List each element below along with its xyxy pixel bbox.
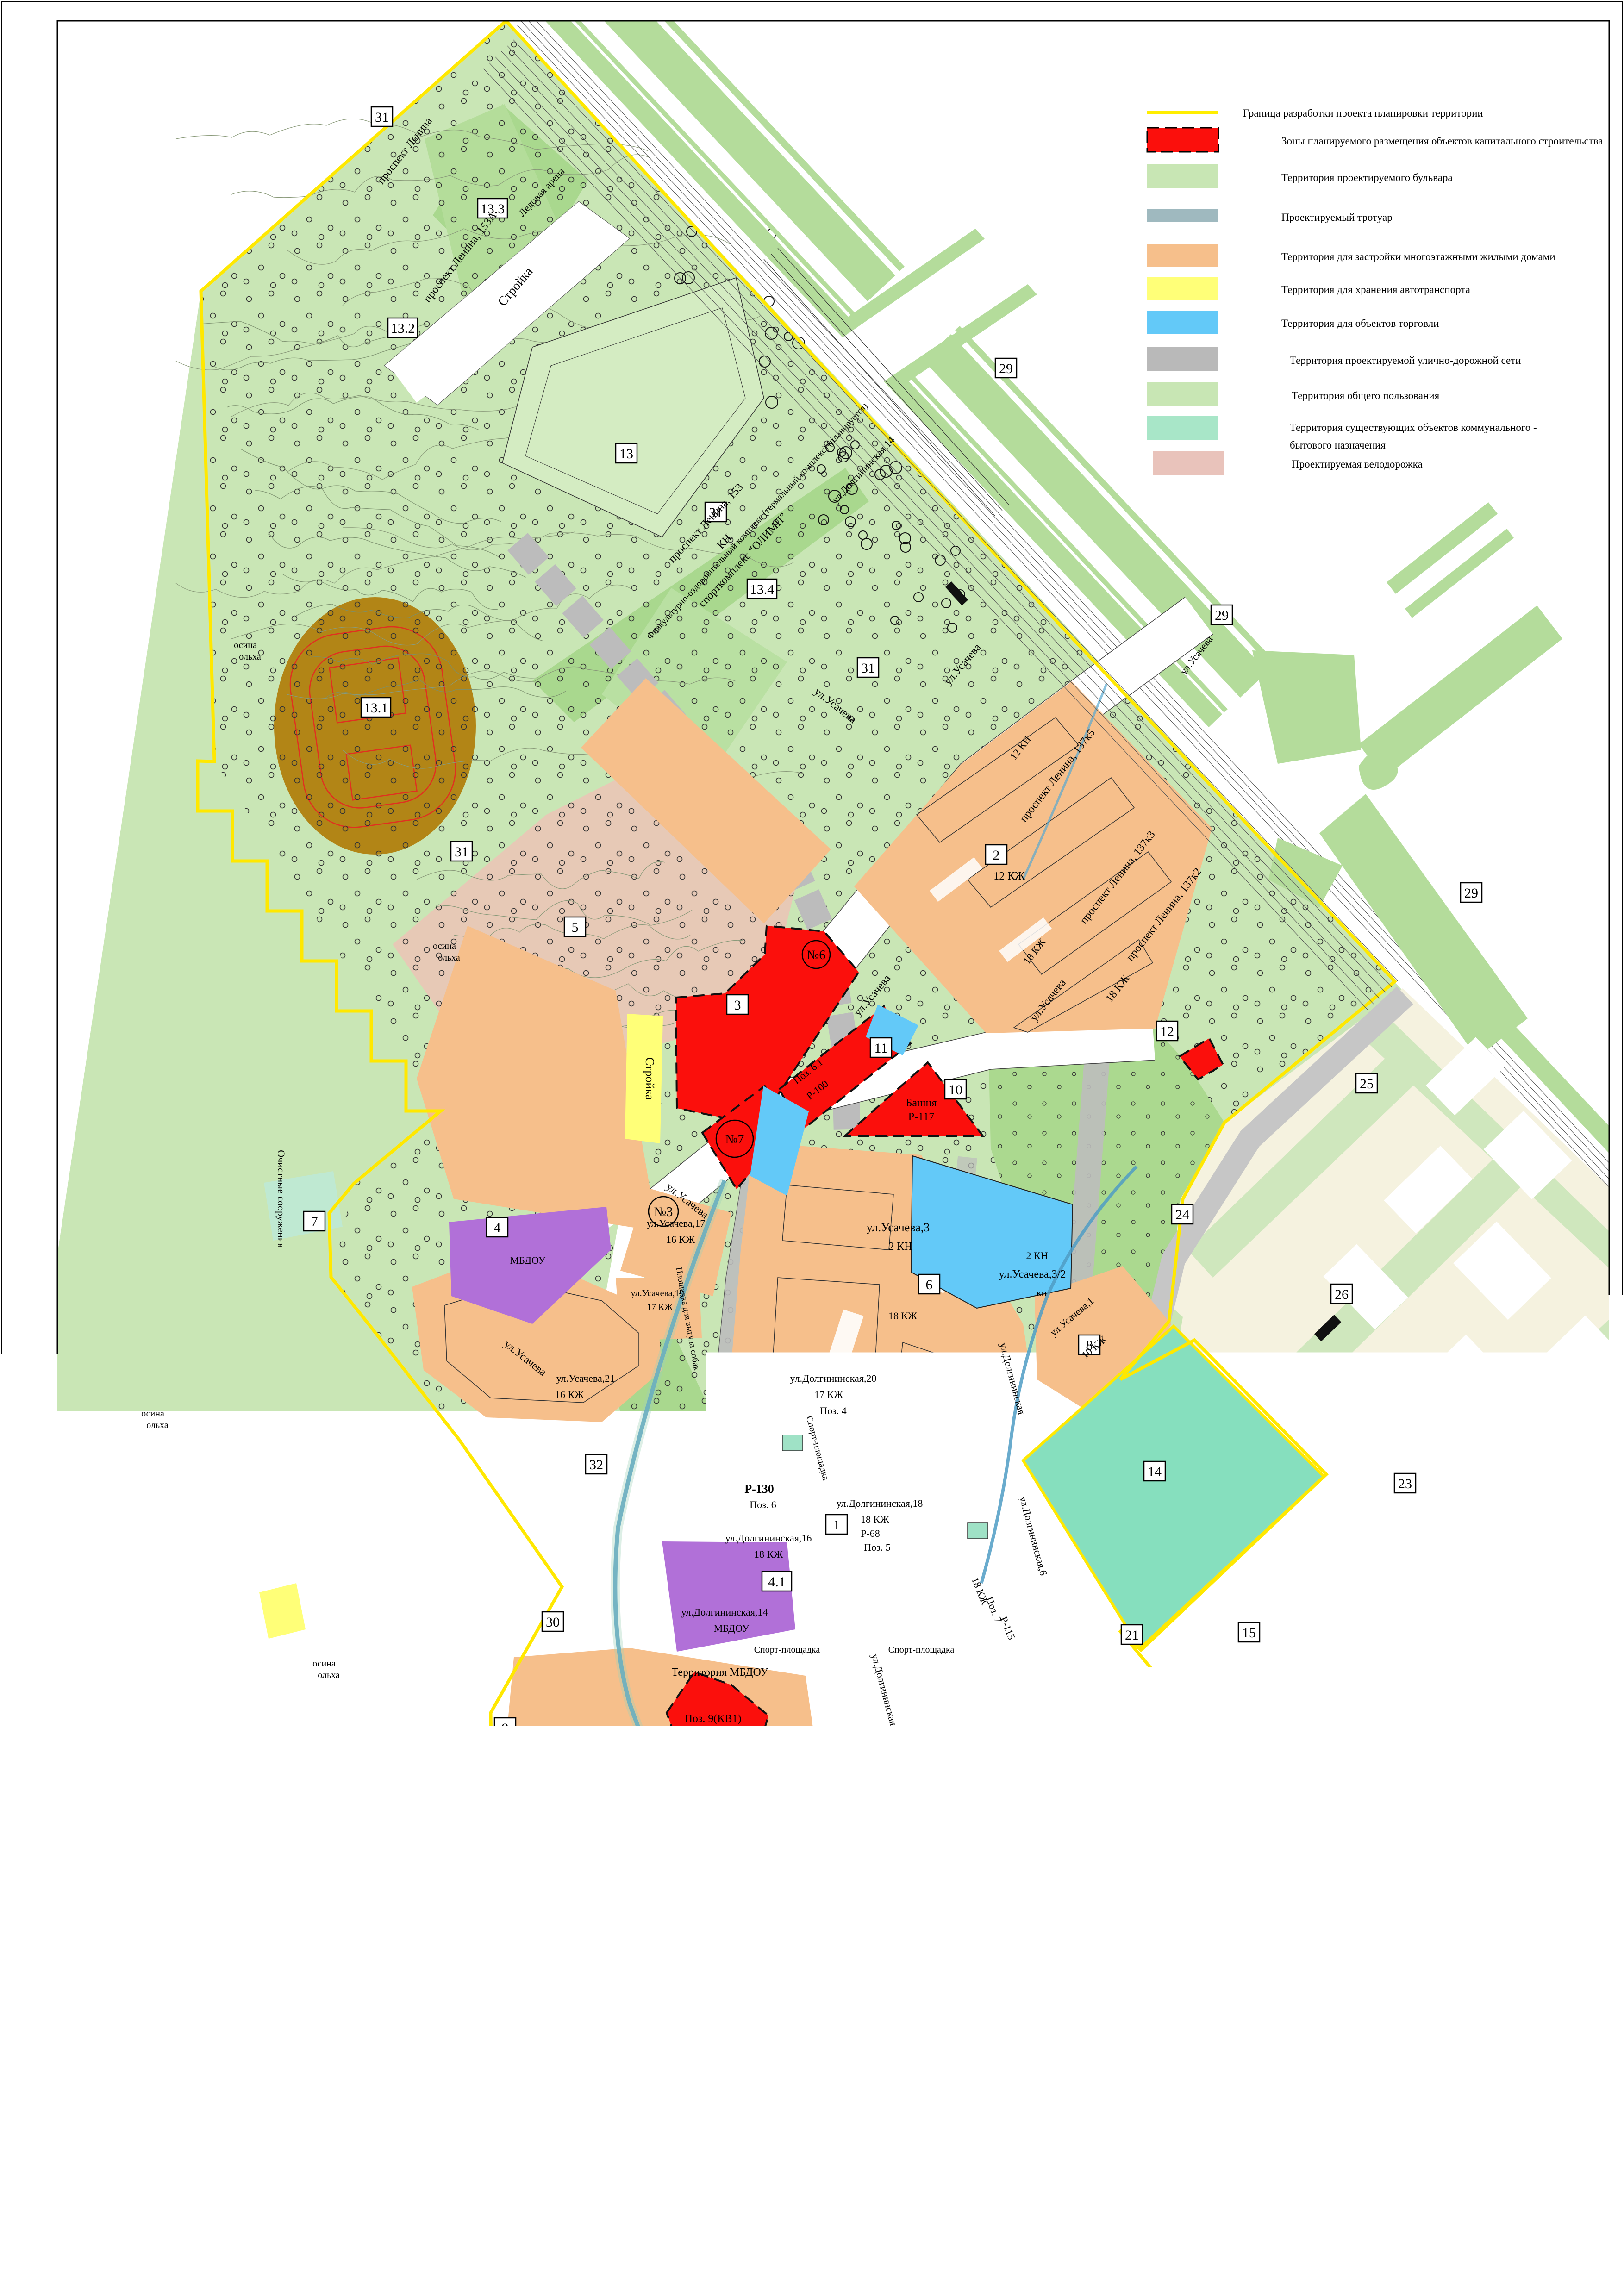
svg-text:существующая: существующая [1541, 1999, 1586, 2006]
svg-text:Кол. уч.: Кол. уч. [1135, 2173, 1158, 2184]
svg-text:Р-117: Р-117 [908, 1111, 934, 1123]
svg-text:существующая: существующая [1541, 1805, 1586, 1813]
svg-text:Участок торгово-офисного центр: Участок торгово-офисного центра [1323, 1867, 1424, 1874]
svg-text:23.: 23. [1294, 2016, 1303, 2023]
svg-text:7.: 7. [1294, 1814, 1299, 1821]
svg-text:16.: 16. [1294, 1954, 1303, 1962]
svg-text:Территория общего пользования: Территория общего пользования [1292, 390, 1440, 401]
svg-text:Территория для объектов торгов: Территория для объектов торговли [1281, 318, 1439, 329]
svg-text:Стадия: Стадия [1477, 2186, 1510, 2198]
svg-text:5.: 5. [1294, 1796, 1299, 1803]
svg-text:6.: 6. [1294, 1805, 1299, 1812]
svg-text:07.25: 07.25 [1260, 2185, 1283, 2197]
svg-text:Стройка: Стройка [643, 1057, 656, 1100]
svg-text:Чертеж границ зон планируемого: Чертеж границ зон планируемого размещени… [1293, 2231, 1449, 2244]
svg-text:20.: 20. [1294, 1990, 1303, 1997]
svg-text:Территория МУП "Водоканал": Территория МУП "Водоканал" [1323, 1937, 1414, 1945]
svg-text:18 КЖ: 18 КЖ [754, 1548, 783, 1560]
svg-text:10: 10 [949, 1082, 962, 1098]
svg-text:Р-119: Р-119 [583, 1827, 607, 1839]
svg-text:существующая: существующая [1541, 2043, 1586, 2050]
svg-text:14: 14 [1148, 1464, 1162, 1479]
svg-text:Граница разработки проекта пла: Граница разработки проекта планировки те… [1243, 107, 1483, 119]
svg-text:подземной автостоянкой: подземной автостоянкой [1323, 1856, 1395, 1864]
svg-text:ул.Усачева,3: ул.Усачева,3 [867, 1221, 930, 1234]
svg-text:21.: 21. [1294, 1998, 1303, 2006]
svg-text:ул.Усачева,3/2: ул.Усачева,3/2 [999, 1268, 1066, 1280]
svg-text:29: 29 [1464, 886, 1478, 901]
svg-text:существующие: существующие [1541, 1902, 1587, 1909]
svg-text:Территория застройки вне Зоны: Территория застройки вне Зоны П [1323, 2078, 1424, 2085]
svg-text:Участок подземных очистных соо: Участок подземных очистных сооружений ли… [1323, 1814, 1509, 1822]
svg-text:Подп. и дата: Подп. и дата [23, 2129, 35, 2183]
svg-text:07.25: 07.25 [1260, 2198, 1283, 2210]
svg-text:16 КЖ: 16 КЖ [666, 1234, 695, 1245]
svg-text:18: 18 [717, 1908, 731, 1923]
svg-text:26: 26 [1335, 1287, 1349, 1302]
svg-text:Проверил: Проверил [1106, 2199, 1129, 2210]
svg-text:21: 21 [1190, 1782, 1204, 1797]
svg-text:существующая: существующая [1541, 1964, 1586, 1971]
svg-text:Озелененная городская территор: Озелененная городская территория [1323, 2096, 1427, 2103]
svg-text:существующая: существующая [1541, 2034, 1586, 2041]
svg-text:16: 16 [1012, 1718, 1025, 1734]
svg-text:Участок общеобр. школы на 900: Участок общеобр. школы на 900 уч. и детс… [1323, 1797, 1509, 1804]
svg-text:Зоны планируемого размещения о: Зоны планируемого размещения объектов ка… [1281, 135, 1603, 147]
svg-text:31.: 31. [1294, 2095, 1303, 2103]
svg-text:12 КЖ: 12 КЖ [993, 870, 1025, 882]
svg-text:Н.Контроль: Н.Контроль [1106, 2213, 1131, 2223]
svg-text:10.: 10. [1294, 1858, 1303, 1865]
svg-text:Научно-деловая зона: Научно-деловая зона [1323, 2043, 1385, 2050]
svg-text:Стадион: Стадион [1323, 1893, 1348, 1901]
svg-text:Территория Станции юных техник: Территория Станции юных техников [1323, 2025, 1432, 2033]
svg-text:19: 19 [1061, 1861, 1074, 1876]
svg-text:7: 7 [446, 1776, 453, 1791]
svg-text:Лист: Лист [1523, 2186, 1547, 2198]
svg-text:Материалы по обоснованию .: Материалы по обоснованию . [1299, 2208, 1403, 2222]
svg-text:22.: 22. [1294, 2007, 1303, 2015]
svg-text:первом этаже: первом этаже [1323, 1830, 1363, 1837]
svg-text:31: 31 [455, 844, 468, 860]
svg-text:2 КН: 2 КН [952, 1787, 974, 1798]
svg-text:32: 32 [589, 1457, 603, 1472]
svg-text:15 КЖ: 15 КЖ [560, 1787, 588, 1798]
svg-text:существующая: существующая [1541, 1937, 1586, 1945]
svg-text:Разработал: Разработал [1106, 2186, 1132, 2197]
svg-text:Дата: Дата [1258, 2172, 1280, 2184]
svg-text:подземной автостоянкой и стило: подземной автостоянкой и стилобатом с не… [1323, 1757, 1518, 1764]
svg-text:13.4: 13.4 [1294, 1928, 1307, 1935]
svg-text:13.2: 13.2 [391, 321, 415, 336]
svg-text:Спортивный комплекс в составе:: Спортивный комплекс в составе: Дворец сп… [1323, 1884, 1465, 1892]
svg-text:планируемый: планируемый [1541, 1924, 1581, 1931]
svg-text:14.: 14. [1294, 1937, 1303, 1944]
svg-text:1: 1 [1573, 2264, 1579, 2277]
svg-text:13: 13 [619, 446, 633, 462]
svg-text:Поз. 6: Поз. 6 [750, 1499, 776, 1510]
svg-text:Документация по планировке и м: Документация по планировке и межеванию т… [1293, 2151, 1561, 2165]
svg-text:существующая: существующая [1541, 2087, 1586, 2094]
svg-text:Согласовано: Согласовано [18, 1916, 30, 1972]
svg-text:18 КЖ: 18 КЖ [861, 1514, 889, 1525]
svg-text:Территория МПКХ "Зеленое хозяй: Территория МПКХ "Зеленое хозяйство" [1323, 1955, 1442, 1962]
svg-text:24.: 24. [1294, 2025, 1303, 2032]
svg-text:строящаяся: строящаяся [1541, 1853, 1575, 1861]
svg-text:№7: №7 [725, 1132, 744, 1147]
svg-text:осина: осина [433, 941, 456, 951]
svg-text:25: 25 [1360, 1076, 1374, 1092]
svg-text:Территория стрелкового клуба: Территория стрелкового клуба [1323, 2008, 1413, 2015]
svg-text:существующая: существующая [1541, 1753, 1586, 1760]
svg-text:15: 15 [1242, 1625, 1256, 1641]
svg-text:2 КН: 2 КН [888, 1241, 912, 1253]
svg-text:ООО "Геоизыскания": ООО "Геоизыскания" [1498, 2238, 1584, 2254]
svg-text:Территория для хранения автотр: Территория для хранения автотранспорта [1281, 284, 1470, 295]
svg-text:Проектируемая велодорожка: Проектируемая велодорожка [1292, 458, 1423, 470]
svg-text:для территорий Общественного ц: для территорий Общественного цента г. Об… [1294, 2168, 1580, 2182]
svg-text:Территория пожарного депо: Территория пожарного депо [1323, 1990, 1406, 1997]
svg-text:4.1: 4.1 [768, 1574, 786, 1590]
svg-text:17.: 17. [1294, 1963, 1303, 1971]
svg-text:ДП №2024/1П: ДП №2024/1П [1294, 2124, 1406, 2140]
svg-text:6: 6 [926, 1277, 933, 1292]
svg-text:11.: 11. [1294, 1866, 1303, 1874]
svg-text:Спорт-площадка: Спорт-площадка [754, 1645, 820, 1655]
svg-text:Ледовая арена: Ледовая арена [1323, 1911, 1365, 1918]
svg-text:ольха: ольха [438, 953, 460, 963]
svg-text:2: 2 [993, 848, 1000, 863]
svg-text:13.2.: 13.2. [1294, 1902, 1308, 1909]
svg-text:17: 17 [893, 1797, 906, 1812]
svg-text:(планируется): (планируется) [1323, 1927, 1364, 1934]
svg-text:7: 7 [1530, 2200, 1541, 2223]
svg-text:Проект планировки территории .: Проект планировки территории . [1299, 2191, 1416, 2205]
svg-text:строящиеся: строящиеся [1541, 1884, 1576, 1892]
svg-text:ул.Долгининская,14: ул.Долгининская,14 [681, 1606, 768, 1618]
svg-text:существующая: существующая [1541, 1972, 1586, 1980]
svg-text:ул.Долгининская,16: ул.Долгининская,16 [725, 1532, 812, 1544]
svg-text:строящийся: строящийся [1541, 1876, 1576, 1883]
svg-text:Поз. 9(КВ1): Поз. 9(КВ1) [685, 1713, 742, 1725]
svg-text:Территория ВЗУ: Территория ВЗУ [1323, 2087, 1372, 2094]
svg-text:8.: 8. [1294, 1831, 1299, 1839]
svg-text:27.: 27. [1294, 2051, 1303, 2059]
svg-text:Квартал "Зеленый остров": Квартал "Зеленый остров" [1323, 1770, 1401, 1778]
svg-text:Квартал "Солнечная долина": Квартал "Солнечная долина" [1323, 1735, 1408, 1742]
svg-text:Территория существующих объект: Территория существующих объектов коммуна… [1290, 422, 1537, 433]
svg-text:Территория горнолыжного компле: Территория горнолыжного комплекса [1323, 2065, 1434, 2072]
svg-text:существующая: существующая [1541, 1990, 1586, 1997]
svg-text:существующая: существующая [1541, 1788, 1586, 1795]
svg-text:4.: 4. [1294, 1778, 1299, 1786]
svg-text:5: 5 [572, 920, 579, 935]
svg-text:2 КН: 2 КН [906, 2037, 927, 2048]
svg-text:3: 3 [734, 998, 741, 1013]
svg-text:ул.Долгининская,18: ул.Долгининская,18 [837, 1497, 923, 1509]
svg-text:17 КЖ: 17 КЖ [647, 1302, 673, 1312]
svg-text:Терехов: Терехов [1162, 2198, 1205, 2211]
svg-text:существующая: существующая [1541, 1955, 1586, 1962]
svg-text:Поз. 10(КВ2): Поз. 10(КВ2) [564, 1812, 626, 1824]
svg-text:существующая: существующая [1541, 1827, 1586, 1834]
svg-text:Очистные сооружения: Очистные сооружения [275, 1150, 287, 1248]
svg-text:ул.Долгининская,20: ул.Долгининская,20 [790, 1373, 877, 1384]
svg-text:30: 30 [546, 1615, 560, 1630]
svg-text:Территория детских садов: Территория детских садов [1391, 1783, 1468, 1791]
svg-text:осина: осина [312, 1659, 336, 1669]
svg-text:30.: 30. [1294, 2086, 1303, 2094]
svg-text:26.: 26. [1294, 2042, 1303, 2050]
svg-text:Проектируемый тротуар: Проектируемый тротуар [1281, 212, 1393, 223]
svg-text:Р-53: Р-53 [706, 1728, 725, 1739]
svg-text:29: 29 [1215, 608, 1229, 623]
svg-text:12.: 12. [1294, 1875, 1303, 1883]
svg-text:15.: 15. [1294, 1946, 1303, 1953]
svg-text:Р-68: Р-68 [861, 1528, 880, 1539]
svg-text:ольха: ольха [239, 652, 261, 662]
svg-text:2.: 2. [1294, 1761, 1299, 1768]
svg-text:18.: 18. [1294, 1972, 1303, 1979]
svg-text:31: 31 [861, 661, 875, 676]
svg-text:проектируемая: проектируемая [1541, 1814, 1586, 1822]
svg-text:существующая: существующая [1541, 1946, 1586, 1953]
svg-text:строящиеся: строящиеся [1541, 1911, 1576, 1918]
svg-text:МБДОУ: МБДОУ [510, 1254, 546, 1266]
svg-text:Башня: Башня [906, 1097, 937, 1109]
svg-text:Территория для застройки много: Территория для застройки многоэтажными ж… [1281, 251, 1555, 262]
svg-text:21: 21 [1125, 1628, 1139, 1643]
svg-text:Гладышев: Гладышев [1162, 2212, 1199, 2223]
svg-text:17 КЖ: 17 КЖ [814, 1389, 843, 1400]
svg-text:Территория Дома ученых: Территория Дома ученых [1323, 2034, 1398, 2041]
svg-text:бытового назначения: бытового назначения [1290, 439, 1386, 451]
svg-text:Территория проектируемого буль: Территория проектируемого бульвара [1281, 172, 1453, 183]
svg-text:28.: 28. [1294, 2069, 1303, 2076]
svg-text:проектируемая: проектируемая [1541, 1841, 1586, 1848]
svg-text:11: 11 [874, 1041, 888, 1056]
svg-text:29: 29 [999, 361, 1013, 376]
svg-text:28: 28 [437, 1895, 450, 1910]
svg-text:18 КЖ: 18 КЖ [587, 1856, 616, 1868]
svg-text:9: 9 [502, 1721, 509, 1736]
svg-text:№6: №6 [807, 948, 826, 962]
svg-text:1: 1 [833, 1517, 840, 1533]
svg-text:13.1: 13.1 [364, 700, 388, 716]
svg-text:13.1.: 13.1. [1294, 1893, 1308, 1900]
svg-text:1.: 1. [1294, 1734, 1299, 1742]
svg-text:13.4: 13.4 [750, 582, 775, 597]
svg-text:Лист: Лист [1162, 2172, 1182, 2184]
svg-text:Территория проектируемой улич: Территория проектируемой улично-дорожной… [1290, 355, 1521, 366]
svg-text:Территория многоквартирного жи: Территория многоквартирного жилого дома … [1323, 1748, 1528, 1755]
svg-text:Наименование: Наименование [1400, 1720, 1459, 1730]
svg-text:32: 32 [1294, 2104, 1301, 2111]
svg-text:07.25: 07.25 [1260, 2211, 1283, 2223]
svg-text:23: 23 [1398, 1476, 1412, 1491]
svg-text:23 КЖ: 23 КЖ [583, 1882, 612, 1893]
svg-text:8: 8 [1577, 2200, 1587, 2223]
svg-text:(перспектива): (перспектива) [1541, 2067, 1582, 2075]
svg-text:П: П [1486, 2200, 1502, 2223]
svg-text:проектируемая: проектируемая [1541, 1779, 1586, 1786]
svg-text:Котельная, КНС, очистные соору: Котельная, КНС, очистные сооружения [1323, 1902, 1439, 1909]
svg-text:13.3.: 13.3. [1294, 1910, 1308, 1918]
svg-text:4: 4 [494, 1220, 501, 1235]
svg-text:Территория АЗС: Территория АЗС [1323, 1946, 1372, 1953]
svg-text:Территория автомойки: Территория автомойки [1323, 1999, 1390, 2006]
svg-text:строящийся: строящийся [1541, 1770, 1576, 1778]
svg-text:ул.Усачева,21: ул.Усачева,21 [556, 1373, 615, 1384]
svg-text:29.: 29. [1294, 2078, 1303, 2085]
svg-text:18 КЖ: 18 КЖ [888, 1310, 917, 1322]
svg-text:Территория теннисной академии: Территория теннисной академии Красноруцк… [1323, 1805, 1464, 1813]
svg-text:существующая: существующая [1541, 2096, 1586, 2103]
svg-text:Общественный центр Зоны II: Общественный центр Зоны II [1323, 1876, 1410, 1883]
svg-text:13.: 13. [1294, 1884, 1303, 1891]
svg-text:Эко-тропа: Эко-тропа [1323, 2104, 1353, 2112]
svg-text:проектируемые: проектируемые [1541, 1797, 1587, 1804]
svg-text:существующая: существующая [1541, 2016, 1586, 2024]
svg-text:Примечание: Примечание [1548, 1720, 1598, 1730]
svg-text:24: 24 [1175, 1207, 1189, 1223]
svg-text:Поз. 5: Поз. 5 [864, 1541, 891, 1553]
svg-text:Взам.инв. №: Взам.инв. № [23, 2045, 35, 2096]
svg-text:9.: 9. [1294, 1840, 1299, 1847]
svg-text:осина: осина [141, 1409, 164, 1419]
svg-text:проектируемый: проектируемый [1541, 1867, 1587, 1874]
svg-text:строящийся: строящийся [1541, 1735, 1576, 1742]
svg-text:Территория завода "Сигнал": Территория завода "Сигнал" [1323, 2052, 1407, 2059]
svg-text:Поз. 4: Поз. 4 [820, 1405, 847, 1416]
svg-text:Территория ПС "Белкино" №259: Территория ПС "Белкино" №259 [1323, 1981, 1419, 1989]
svg-text:строящиеся: строящиеся [1541, 1893, 1576, 1901]
svg-text:2 КН: 2 КН [1026, 1250, 1048, 1261]
svg-text:существующая: существующая [1541, 2078, 1586, 2085]
svg-text:Изм.: Изм. [1107, 2172, 1128, 2184]
svg-text:7: 7 [311, 1214, 318, 1229]
svg-text:Листов: Листов [1565, 2186, 1599, 2198]
svg-text:Номер: Номер [1293, 1720, 1319, 1730]
svg-text:ул.Усачева,19: ул.Усачева,19 [631, 1288, 684, 1298]
svg-text:ольха: ольха [318, 1670, 340, 1680]
svg-text:12: 12 [1160, 1024, 1174, 1039]
svg-text:Подп.: Подп. [1224, 2172, 1248, 2184]
svg-text:проектируемая: проектируемая [1541, 2104, 1586, 2112]
svg-text:Инв. № подл.: Инв. № подл. [24, 2211, 35, 2263]
svg-text:27: 27 [1255, 1758, 1269, 1773]
svg-text:Территория школы олимпийского: Территория школы олимпийского резерва по… [1323, 2016, 1488, 2024]
svg-text:кн: кн [1037, 1287, 1047, 1298]
svg-text:Р-130: Р-130 [744, 1482, 774, 1496]
svg-text:3.: 3. [1294, 1770, 1299, 1777]
svg-text:ольха: ольха [146, 1420, 169, 1430]
svg-text:существующая: существующая [1541, 1981, 1586, 1989]
svg-text:Спорт-площадка: Спорт-площадка [888, 1645, 955, 1655]
svg-text:МБДОУ: МБДОУ [714, 1622, 750, 1634]
svg-text:Территория МБДОУ: Территория МБДОУ [672, 1666, 768, 1678]
svg-text:Территория ГСК: Территория ГСК [1323, 1964, 1373, 1971]
svg-text:существующая: существующая [1541, 2008, 1586, 2015]
svg-text:16 КЖ: 16 КЖ [555, 1389, 584, 1400]
svg-text:существующая: существующая [1541, 2025, 1586, 2033]
svg-text:ул.Усачева,17: ул.Усачева,17 [647, 1217, 706, 1229]
svg-text:25.: 25. [1294, 2034, 1303, 2041]
svg-text:4.1: 4.1 [1294, 1787, 1303, 1795]
svg-text:масштаб 1:2000: масштаб 1:2000 [1292, 2253, 1360, 2267]
svg-text:Территория СТ "Самсонова": Территория СТ "Самсонова" [1323, 1972, 1407, 1980]
svg-text:существующая: существующая [1541, 2052, 1586, 2059]
svg-text:31: 31 [375, 110, 389, 125]
svg-text:19.: 19. [1294, 1981, 1303, 1988]
svg-text:№ док.: № док. [1189, 2173, 1212, 2184]
svg-text:Милосердов: Милосердов [1162, 2185, 1209, 2197]
svg-text:Территория наземной парковки: Территория наземной парковки [1323, 1841, 1416, 1848]
svg-text:осина: осина [234, 640, 257, 650]
